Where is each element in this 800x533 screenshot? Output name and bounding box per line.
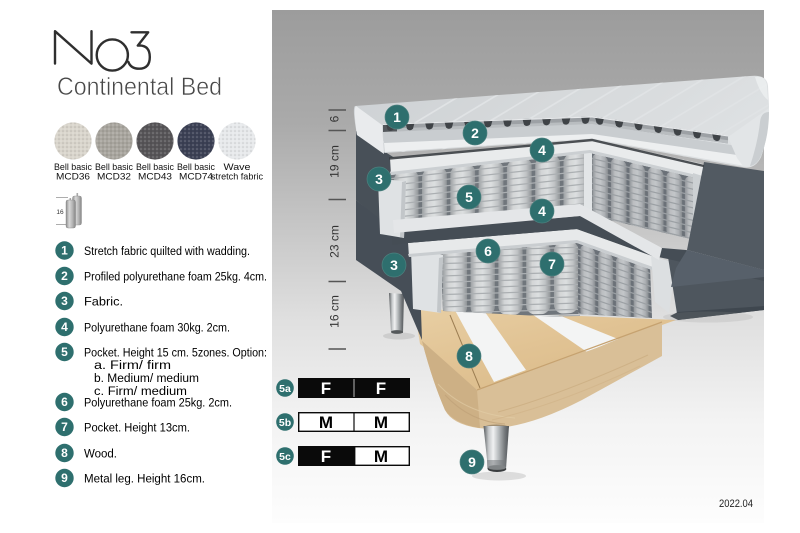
svg-text:stretch fabric: stretch fabric [211,172,263,182]
svg-text:2: 2 [61,269,68,283]
svg-text:M: M [374,413,388,432]
svg-text:6: 6 [484,243,492,259]
svg-text:Continental Bed: Continental Bed [57,73,222,101]
svg-text:5a: 5a [279,383,291,395]
svg-text:8: 8 [61,446,68,460]
svg-text:Wave: Wave [224,162,251,172]
svg-text:MCD74: MCD74 [179,172,213,182]
svg-text:Bell basic: Bell basic [136,162,174,172]
svg-text:4: 4 [538,203,546,219]
svg-text:5b: 5b [279,417,291,429]
svg-text:9: 9 [61,471,68,485]
svg-text:M: M [374,447,388,466]
svg-text:Fabric.: Fabric. [84,295,123,309]
svg-text:F: F [376,379,386,398]
svg-text:8: 8 [465,348,473,364]
svg-text:Metal leg. Height 16cm.: Metal leg. Height 16cm. [84,472,205,486]
svg-text:MCD32: MCD32 [97,172,131,182]
svg-text:F: F [321,447,331,466]
svg-text:Wood.: Wood. [84,447,117,461]
svg-text:9: 9 [468,454,476,470]
svg-text:3: 3 [390,257,398,273]
svg-text:Stretch fabric quilted with wa: Stretch fabric quilted with wadding. [84,244,250,258]
svg-text:2: 2 [471,125,479,141]
svg-text:23 cm: 23 cm [328,225,342,258]
svg-text:Bell basic: Bell basic [54,162,92,172]
svg-text:Bell basic: Bell basic [177,162,215,172]
svg-text:a. Firm/ firm: a. Firm/ firm [94,358,171,372]
svg-text:6: 6 [61,395,68,409]
svg-text:5c: 5c [279,451,291,463]
svg-text:5: 5 [61,345,68,359]
svg-text:Polyurethane foam 30kg. 2cm.: Polyurethane foam 30kg. 2cm. [84,321,230,335]
svg-text:5: 5 [465,189,473,205]
svg-text:3: 3 [61,294,68,308]
svg-text:1: 1 [393,109,401,125]
svg-text:6: 6 [328,115,342,122]
svg-text:3: 3 [375,171,383,187]
svg-text:c. Firm/ medium: c. Firm/ medium [94,384,187,398]
svg-text:Pocket. Height 13cm.: Pocket. Height 13cm. [84,421,190,435]
svg-text:Profiled polyurethane foam 25k: Profiled polyurethane foam 25kg. 4cm. [84,270,267,284]
svg-text:1: 1 [61,244,68,258]
svg-text:7: 7 [548,256,556,272]
svg-text:16 cm: 16 cm [328,295,342,328]
svg-text:7: 7 [61,420,68,434]
svg-text:19 cm: 19 cm [328,145,342,178]
svg-text:F: F [321,379,331,398]
svg-text:4: 4 [61,320,68,334]
svg-text:4: 4 [538,142,546,158]
svg-text:MCD43: MCD43 [138,172,172,182]
svg-text:MCD36: MCD36 [56,172,90,182]
svg-text:b. Medium/ medium: b. Medium/ medium [94,371,199,385]
svg-text:Bell basic: Bell basic [95,162,133,172]
svg-text:2022.04: 2022.04 [719,498,753,510]
svg-text:M: M [319,413,333,432]
svg-text:16: 16 [56,209,64,216]
